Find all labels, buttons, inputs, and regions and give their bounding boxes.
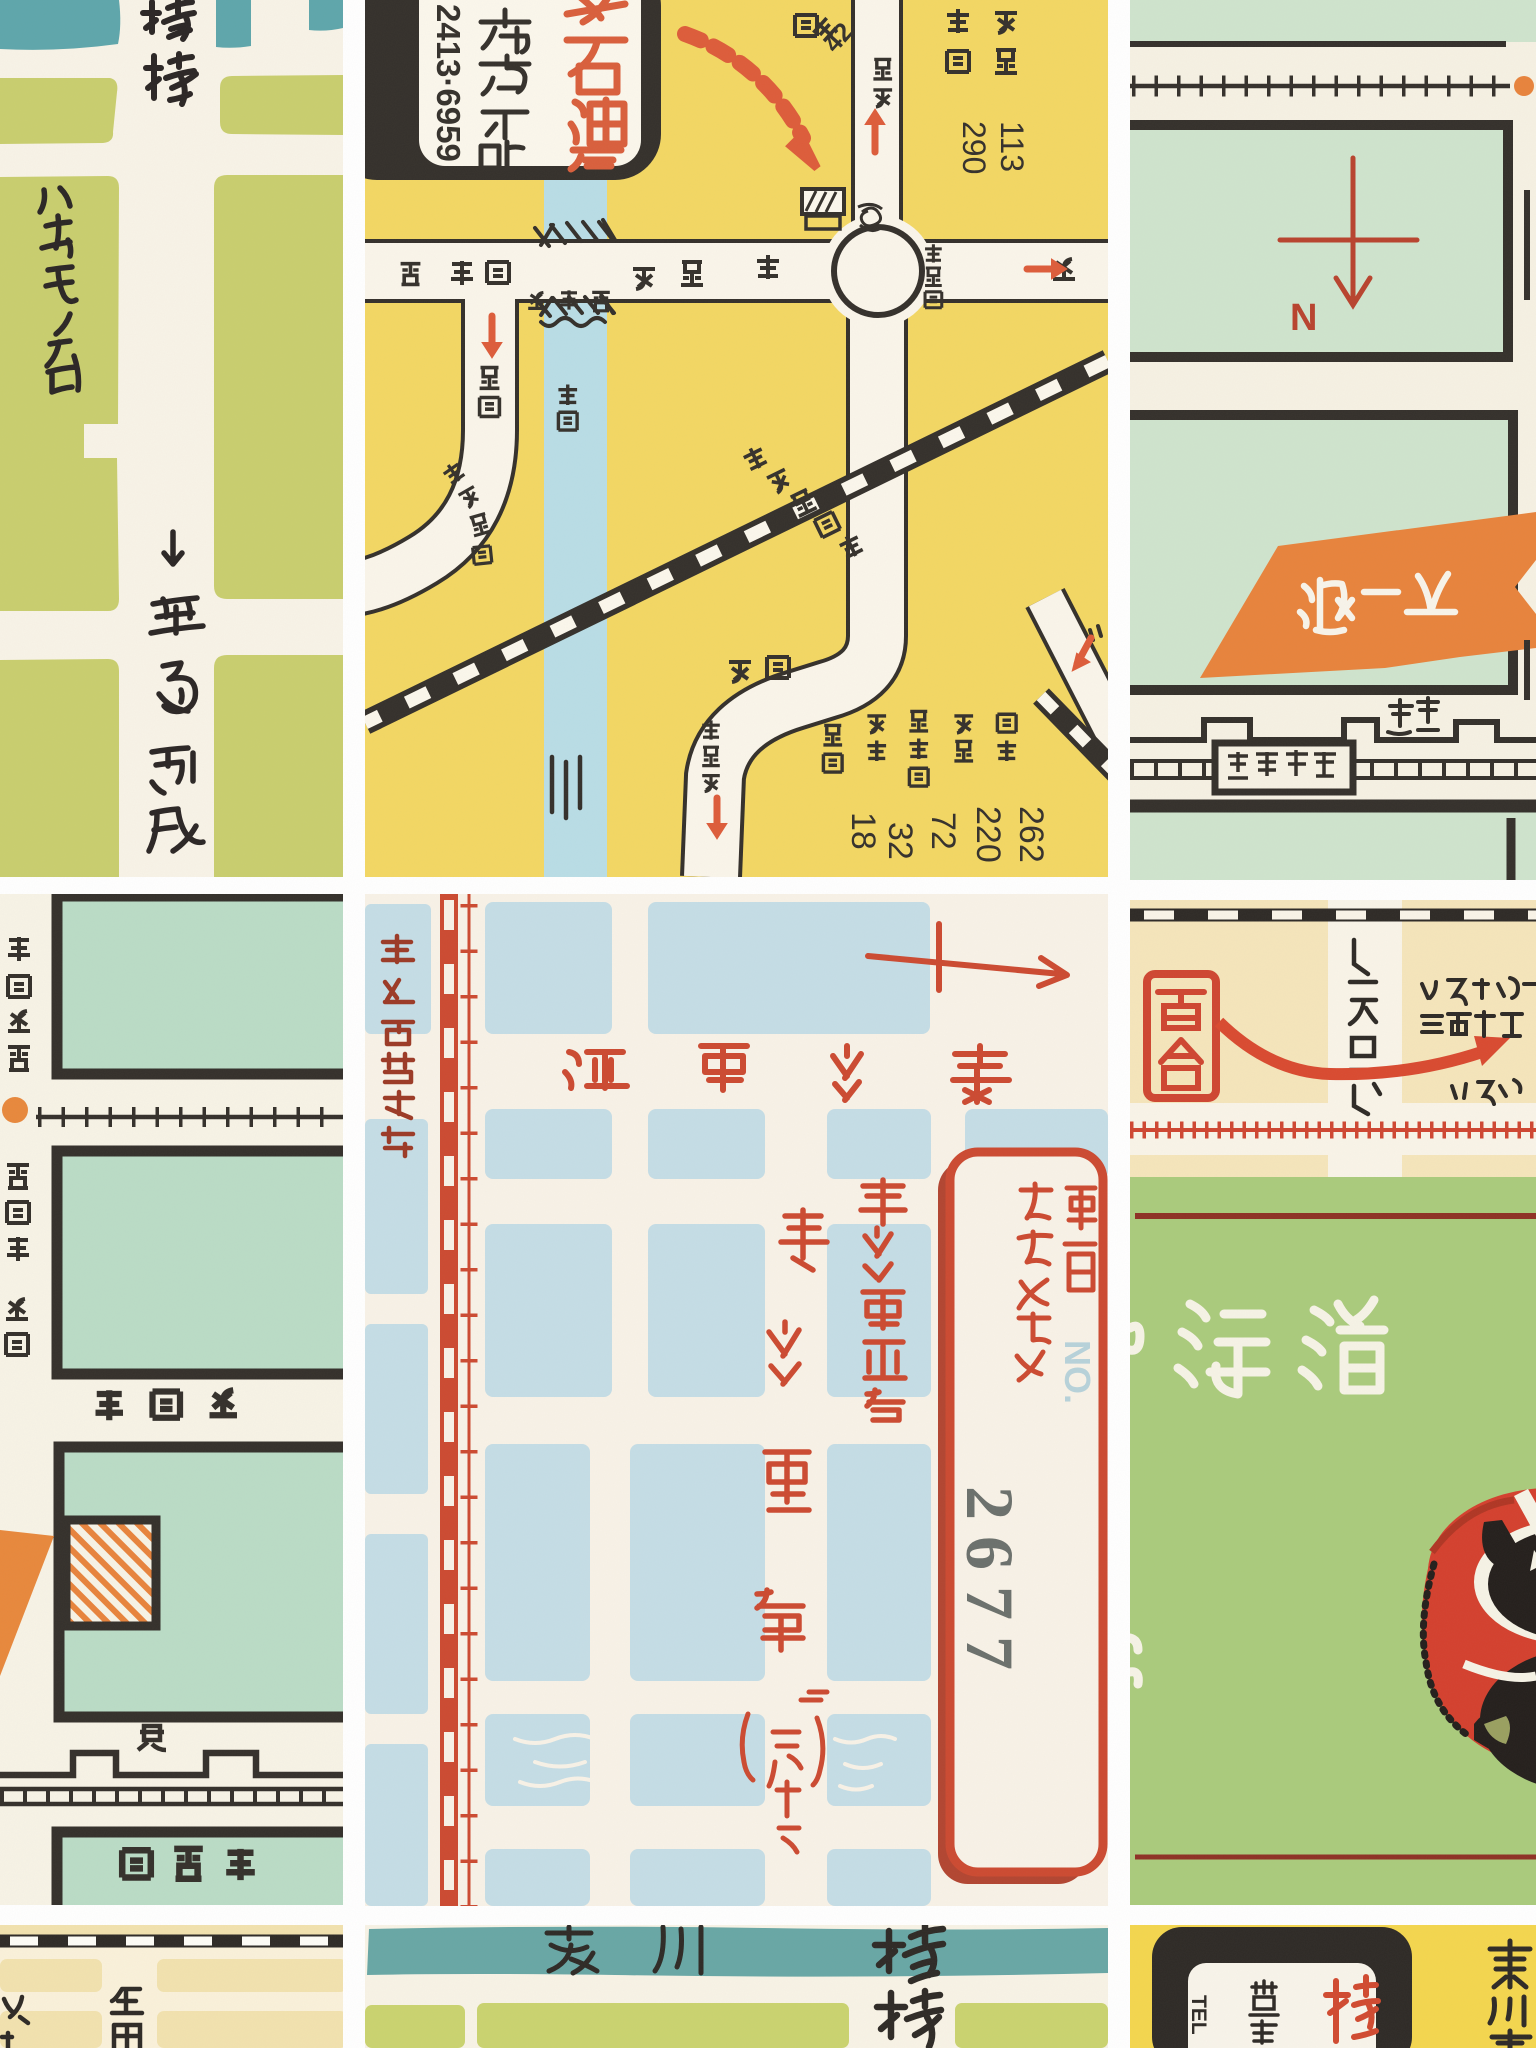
svg-text:290: 290 [956,121,992,174]
svg-text:113: 113 [994,121,1030,172]
svg-text:220: 220 [969,806,1007,863]
svg-text:72: 72 [924,812,962,850]
svg-text:TEL: TEL [1187,1995,1210,2035]
svg-text:32: 32 [881,822,919,860]
svg-text:N: N [1290,297,1317,339]
svg-text:2677: 2677 [952,1486,1028,1686]
svg-text:2413·6959: 2413·6959 [430,4,467,162]
svg-text:262: 262 [1012,806,1050,863]
svg-text:NO.: NO. [1057,1340,1098,1404]
svg-text:18: 18 [844,812,882,850]
